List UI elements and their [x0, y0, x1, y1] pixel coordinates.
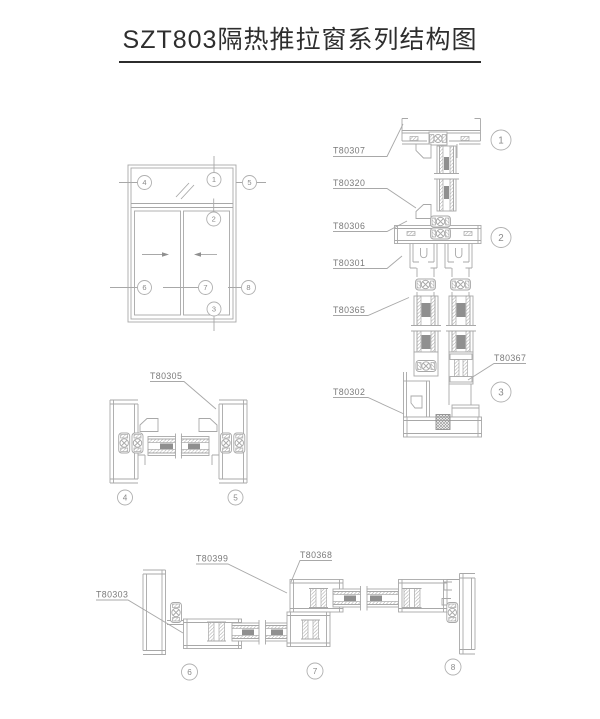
sash-glass-unit-left	[414, 296, 438, 352]
glass-hatch-marks	[176, 183, 194, 199]
sash-roller-glyph	[451, 279, 471, 290]
sash-rail-right	[399, 580, 448, 613]
transom-line	[131, 204, 233, 208]
svg-text:T80302: T80302	[333, 387, 365, 397]
svg-text:8: 8	[451, 663, 456, 672]
sash-glass-unit-right	[449, 296, 473, 352]
section-marker-3: 3	[491, 382, 511, 402]
elevation-marker-7: 7	[199, 281, 213, 295]
vertical-section-detail: T80307 T80320 T80306 T80301 T80365 T8036…	[333, 119, 526, 438]
section-marker-5: 5	[228, 490, 243, 505]
section-marker-1: 1	[491, 130, 511, 150]
svg-text:4: 4	[123, 493, 128, 502]
sash-top-channels	[410, 244, 472, 278]
elevation-marker-3: 3	[207, 302, 221, 316]
svg-text:T80305: T80305	[150, 371, 182, 381]
svg-text:7: 7	[203, 283, 207, 292]
roller-glyph	[132, 433, 143, 453]
svg-text:T80399: T80399	[196, 554, 228, 564]
bottom-roller-glyph	[416, 361, 436, 372]
svg-text:T80367: T80367	[494, 353, 526, 363]
part-label-t80305: T80305	[150, 371, 216, 409]
part-label-t80302: T80302	[333, 387, 404, 414]
glazing-bead	[199, 419, 217, 432]
slide-arrow-left	[142, 252, 169, 256]
svg-text:T80301: T80301	[333, 258, 365, 268]
section-marker-7: 7	[307, 663, 323, 679]
svg-text:4: 4	[142, 178, 146, 187]
svg-text:T80320: T80320	[333, 178, 365, 188]
elevation-marker-6: 6	[138, 281, 152, 295]
roller-glyph	[234, 433, 245, 453]
fixed-glass-unit	[148, 434, 209, 459]
svg-text:T80365: T80365	[333, 305, 365, 315]
svg-text:T80306: T80306	[333, 221, 365, 231]
sash-left	[135, 211, 181, 315]
window-structure-drawing: 1 2 3 4 5 6 7	[0, 0, 600, 719]
svg-text:T80303: T80303	[96, 590, 128, 600]
part-label-t80367: T80367	[468, 353, 526, 380]
part-label-t80307: T80307	[333, 124, 403, 157]
roller-glyph	[447, 603, 458, 623]
part-label-t80368: T80368	[291, 550, 332, 582]
glazing-bead-bottom	[416, 205, 431, 219]
svg-text:T80368: T80368	[300, 550, 332, 560]
roller-glyph	[119, 433, 130, 453]
elevation-marker-5: 5	[243, 176, 257, 190]
section-marker-8: 8	[445, 659, 461, 675]
mid-horizontal-section-detail: T80305 4 5	[110, 371, 247, 505]
sliding-glass-unit-left	[232, 620, 294, 645]
svg-text:3: 3	[498, 387, 504, 398]
sash-right	[184, 211, 230, 315]
transom-glass-unit	[434, 146, 459, 211]
section-marker-6: 6	[182, 664, 198, 680]
drawing-sheet: SZT803隔热推拉窗系列结构图	[0, 0, 600, 719]
sliding-glass-unit-right	[333, 586, 399, 611]
part-label-t80320: T80320	[333, 178, 416, 208]
slide-arrow-right	[194, 252, 217, 256]
roller-glyph	[431, 228, 451, 239]
elevation-marker-2: 2	[207, 212, 221, 226]
elevation-marker-8: 8	[242, 281, 256, 295]
transom-profile	[395, 216, 482, 244]
part-label-t80303: T80303	[96, 590, 183, 634]
svg-text:8: 8	[246, 283, 250, 292]
svg-text:5: 5	[233, 493, 238, 502]
svg-text:T80307: T80307	[333, 146, 365, 156]
part-label-t80301: T80301	[333, 256, 402, 269]
svg-text:2: 2	[212, 215, 216, 224]
roller-glyph	[221, 433, 232, 453]
svg-text:6: 6	[142, 283, 146, 292]
window-elevation-diagram: 1 2 3 4 5 6 7	[110, 156, 266, 331]
svg-text:3: 3	[212, 305, 216, 314]
bottom-horizontal-section-detail: T80303 T80399 T80368 6 7 8	[96, 550, 475, 680]
svg-text:6: 6	[187, 668, 192, 677]
svg-text:2: 2	[498, 233, 503, 244]
elevation-marker-4: 4	[138, 176, 152, 190]
section-marker-4: 4	[118, 490, 133, 505]
svg-text:1: 1	[212, 175, 216, 184]
roller-glyph	[431, 216, 451, 227]
svg-text:1: 1	[498, 135, 503, 146]
svg-text:7: 7	[313, 667, 318, 676]
section-marker-2: 2	[491, 228, 511, 248]
roller-glyph	[171, 603, 182, 623]
elevation-marker-1: 1	[207, 173, 221, 187]
glazing-bead	[140, 419, 158, 432]
part-label-t80365: T80365	[333, 298, 409, 316]
glazing-bead-top	[416, 144, 431, 158]
sash-roller-glyph	[416, 279, 436, 290]
svg-text:5: 5	[247, 178, 251, 187]
sash-bottom-rails	[414, 352, 473, 384]
part-label-t80399: T80399	[196, 554, 287, 594]
